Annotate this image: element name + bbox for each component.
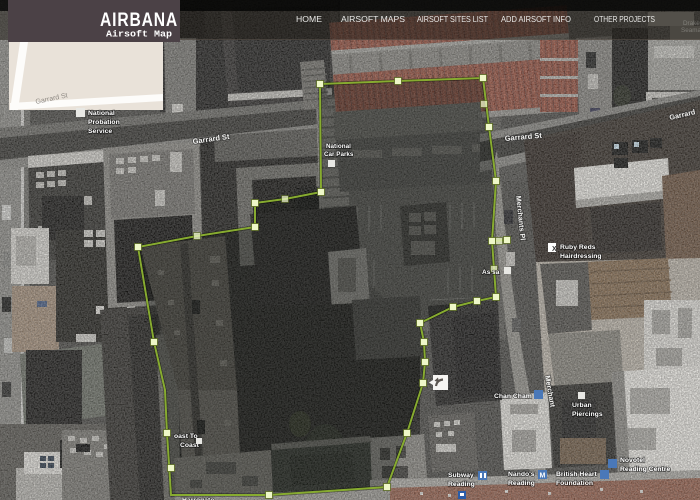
svg-text:Ruby Reds: Ruby Reds — [560, 244, 596, 251]
svg-text:Nando's: Nando's — [508, 471, 535, 478]
svg-text:Seaman: Seaman — [681, 27, 700, 34]
svg-text:Chan Cham: Chan Cham — [494, 393, 532, 400]
svg-text:AIRSOFT MAPS: AIRSOFT MAPS — [341, 14, 405, 24]
svg-text:Probation: Probation — [88, 119, 120, 126]
svg-text:OTHER PROJECTS: OTHER PROJECTS — [594, 14, 655, 24]
svg-text:As sa: As sa — [482, 269, 500, 276]
svg-text:National: National — [88, 110, 115, 117]
svg-text:Hairdressing: Hairdressing — [560, 253, 602, 260]
svg-text:National: National — [326, 143, 351, 150]
svg-text:Urban: Urban — [572, 402, 592, 409]
svg-text:Novotel: Novotel — [620, 457, 645, 464]
svg-text:HOME: HOME — [296, 14, 322, 24]
svg-text:Piercings: Piercings — [572, 411, 603, 418]
svg-text:British Heart: British Heart — [556, 471, 598, 478]
svg-text:M: M — [540, 473, 546, 480]
svg-text:Service: Service — [88, 128, 112, 135]
svg-text:Foundation: Foundation — [556, 480, 593, 487]
svg-text:oast To: oast To — [174, 433, 198, 440]
svg-text:Airsoft Map: Airsoft Map — [106, 29, 172, 40]
svg-text:Subway: Subway — [448, 472, 474, 479]
svg-text:Reading: Reading — [508, 480, 535, 487]
svg-text:Reading Centre: Reading Centre — [620, 466, 670, 473]
svg-text:Car Parks: Car Parks — [324, 151, 354, 158]
svg-text:ADD AIRSOFT INFO: ADD AIRSOFT INFO — [501, 14, 571, 24]
svg-text:Reading: Reading — [448, 481, 475, 488]
svg-text:AIRSOFT SITES LIST: AIRSOFT SITES LIST — [417, 14, 488, 24]
svg-text:Drake: Drake — [683, 20, 700, 27]
svg-text:X: X — [552, 246, 557, 253]
